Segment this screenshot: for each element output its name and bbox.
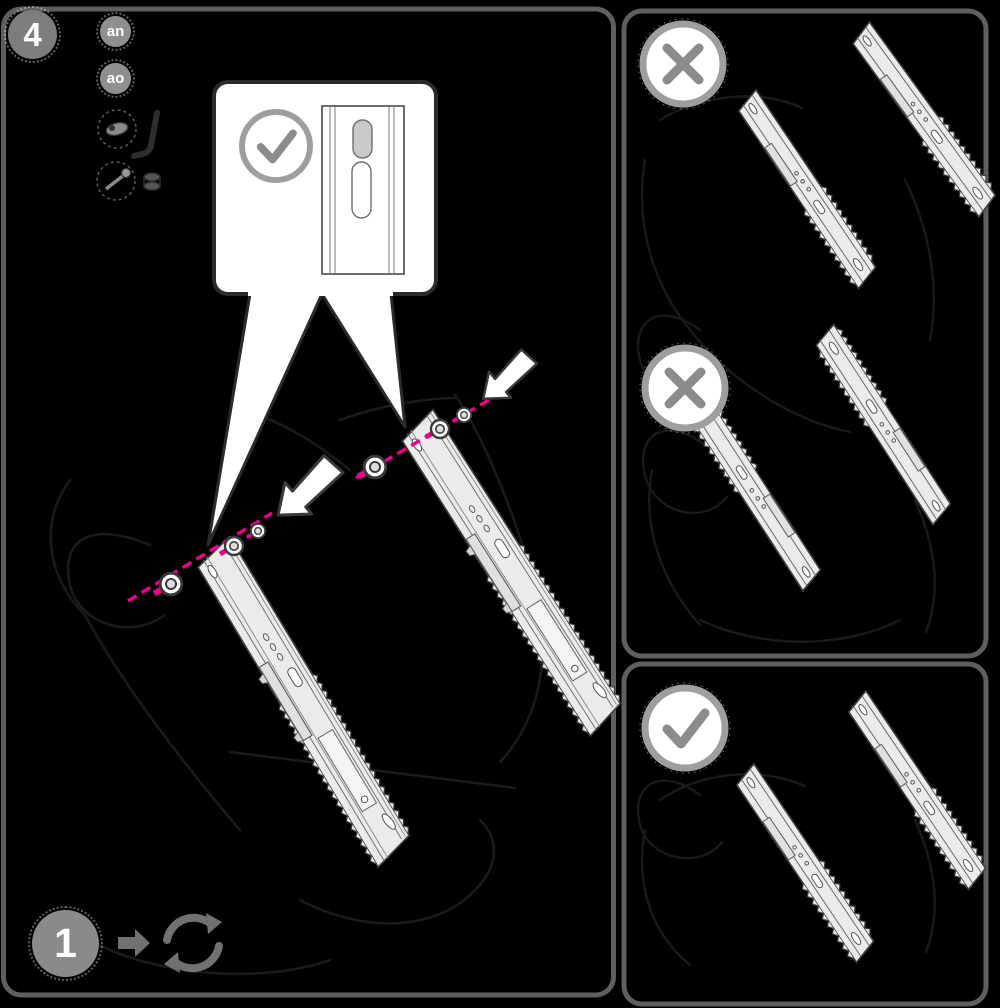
part-badge-ao: ao — [100, 63, 131, 94]
mounting-slot-filled — [353, 120, 372, 158]
hardware-list — [97, 110, 160, 200]
screw-icon — [453, 408, 471, 422]
screw-icon — [358, 456, 386, 478]
arrow-right-icon — [118, 929, 150, 957]
allen-key-icon — [134, 113, 157, 156]
rail-right-main — [392, 407, 629, 739]
check-icon — [640, 683, 730, 773]
rail-wrong1-a — [731, 88, 883, 291]
callout-tail-junction — [248, 288, 393, 296]
rail-wrong2-b — [809, 322, 958, 527]
cross-icon — [638, 19, 728, 109]
rail-front-view — [322, 106, 404, 274]
substep-number-badge: 1 — [32, 910, 99, 977]
part-label: an — [107, 23, 125, 40]
instruction-page: 4 an ao 1 — [0, 0, 1000, 1008]
rail-correct-b — [841, 689, 993, 892]
instruction-artwork — [0, 0, 1000, 1008]
callout-tail-right — [322, 294, 405, 427]
cam-lock-icon — [144, 173, 160, 190]
part-label: ao — [107, 70, 125, 87]
rail-left-main — [188, 535, 418, 870]
substep-number: 1 — [54, 920, 77, 967]
screw-icon — [247, 524, 265, 538]
mounting-slot-empty — [352, 162, 371, 218]
step-number-badge: 4 — [8, 10, 57, 59]
cabinet-sketch-correct — [638, 774, 935, 965]
rail-correct-a — [729, 762, 881, 965]
part-badge-an: an — [100, 16, 131, 47]
rotate-repeat-icon — [164, 913, 222, 973]
footer-repeat-hint — [118, 913, 222, 973]
rail-wrong1-b — [845, 20, 1000, 220]
step-number: 4 — [23, 16, 41, 54]
